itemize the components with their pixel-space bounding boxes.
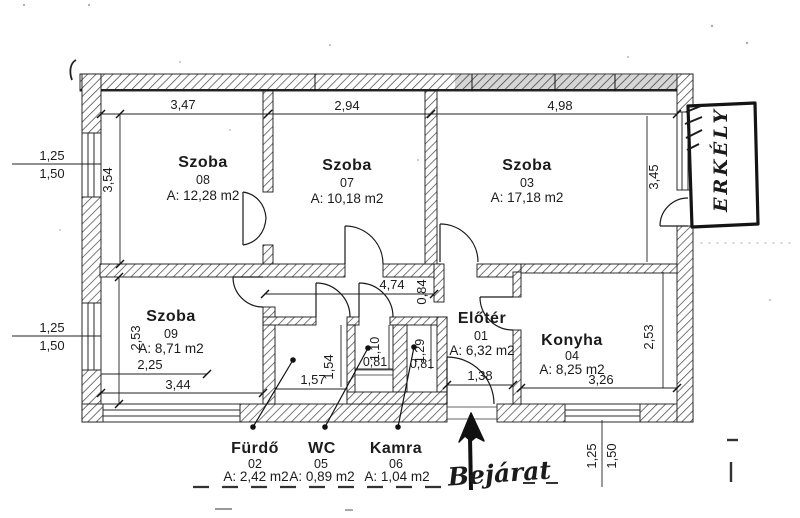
room-name: Szoba	[322, 157, 372, 174]
dim-konyha-w: 3,26	[588, 372, 613, 387]
door-szoba03	[440, 224, 478, 262]
room-number: 09	[164, 327, 178, 341]
room-konyha: Konyha 04 A: 8,25 m2	[539, 332, 604, 377]
dim-window-left-bottom-b: 1,50	[39, 338, 64, 353]
room-eloter: Előtér 01 A: 6,32 m2	[449, 310, 514, 358]
room-labels: Szoba 08 A: 12,28 m2 Szoba 07 A: 10,18 m…	[138, 154, 604, 484]
dim-window-left-bottom-a: 1,25	[39, 320, 64, 335]
window-left-bottom	[82, 303, 101, 370]
label-wc: WC 05 A: 0,89 m2	[289, 440, 354, 484]
door-entrance	[447, 357, 497, 419]
dim-corridor-h: 0,84	[414, 279, 429, 304]
room-area: A: 12,28 m2	[167, 188, 240, 203]
room-number: 03	[520, 176, 534, 190]
door-szoba09	[233, 277, 263, 307]
floor-plan-scan: ERKÉLY Szoba 08 A: 12,28 m2 Szoba 07 A: …	[0, 0, 800, 518]
door-szoba08	[243, 192, 266, 245]
room-area: A: 2,42 m2	[223, 469, 288, 484]
door-furdo	[316, 283, 350, 317]
dim-konyha-h: 2,53	[641, 324, 656, 349]
room-area: A: 8,71 m2	[138, 341, 203, 356]
balcony: ERKÉLY	[685, 103, 795, 243]
dim-szoba03-w: 4,98	[547, 98, 572, 113]
entrance-arrow-head	[459, 413, 484, 442]
room-szoba-03: Szoba 03 A: 17,18 m2	[491, 157, 564, 205]
room-name: Fürdő	[231, 440, 279, 457]
door-balcony	[660, 198, 688, 226]
door-szoba07	[345, 226, 383, 264]
room-number: 08	[196, 173, 210, 187]
room-name: Kamra	[370, 440, 422, 457]
window-konyha	[565, 404, 640, 422]
room-name: Szoba	[146, 308, 196, 325]
room-szoba-09: Szoba 09 A: 8,71 m2	[138, 308, 203, 356]
room-area: A: 17,18 m2	[491, 190, 564, 205]
room-area: A: 6,32 m2	[449, 343, 514, 358]
room-name: Szoba	[178, 154, 228, 171]
dim-furdo-h: 1,54	[321, 354, 336, 379]
dim-window-kitchen-a: 1,25	[584, 443, 599, 468]
room-name: Konyha	[541, 332, 603, 349]
dim-window-kitchen-b: 1,50	[604, 443, 619, 468]
label-kamra: Kamra 06 A: 1,04 m2	[364, 440, 429, 484]
dim-window-left-top-b: 1,50	[39, 166, 64, 181]
room-number: 04	[565, 349, 579, 363]
dim-szoba03-h: 3,45	[646, 164, 661, 189]
floor-plan-drawing: ERKÉLY Szoba 08 A: 12,28 m2 Szoba 07 A: …	[0, 0, 800, 518]
entrance-annotation: Bejárat	[446, 413, 552, 492]
room-area: A: 10,18 m2	[311, 191, 384, 206]
room-szoba-07: Szoba 07 A: 10,18 m2	[311, 157, 384, 206]
dim-szoba09-w2: 3,44	[165, 377, 190, 392]
label-furdo: Fürdő 02 A: 2,42 m2	[223, 440, 288, 484]
dim-szoba07-w: 2,94	[334, 98, 359, 113]
room-name: Szoba	[502, 157, 552, 174]
balcony-label: ERKÉLY	[709, 107, 732, 213]
room-area: A: 1,04 m2	[364, 469, 429, 484]
dim-szoba08-w: 3,47	[170, 97, 195, 112]
room-szoba-08: Szoba 08 A: 12,28 m2	[167, 154, 240, 203]
dim-wc-w: 0,81	[363, 355, 387, 369]
dim-window-left-top-a: 1,25	[39, 148, 64, 163]
dim-szoba08-h: 3,54	[100, 167, 115, 192]
dim-szoba09-h: 2,53	[128, 325, 143, 350]
window-szoba09	[103, 404, 240, 422]
room-number: 07	[340, 176, 354, 190]
room-name: WC	[308, 440, 336, 457]
entrance-label: Bejárat	[446, 455, 552, 491]
window-left-top	[82, 133, 101, 197]
dim-eloter-entry: 1,38	[467, 368, 492, 383]
dim-szoba09-w1: 2,25	[137, 357, 162, 372]
dim-kamra-w: 0,81	[410, 357, 434, 371]
room-name: Előtér	[458, 310, 506, 327]
room-area: A: 0,89 m2	[289, 469, 354, 484]
room-number: 01	[474, 329, 488, 343]
dim-corridor-w: 4,74	[379, 277, 404, 292]
